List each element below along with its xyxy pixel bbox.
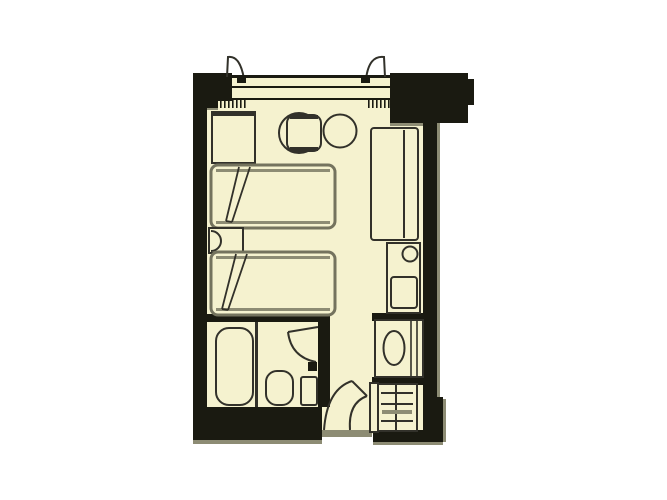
twin-bed-2 <box>211 252 335 315</box>
bed-2-fold-top <box>216 256 330 259</box>
cafe-table <box>287 115 321 151</box>
entry-door-frame <box>370 383 378 432</box>
floor-plan-canvas <box>0 0 667 500</box>
wall-right-column <box>423 123 437 397</box>
counter-desk-top <box>371 128 418 240</box>
closet-hanger-rod <box>382 410 412 414</box>
curtain-box-left <box>218 100 247 108</box>
cabinet-body <box>212 112 255 163</box>
shadow-right-column <box>437 123 440 397</box>
curtain-right-tieback <box>361 75 370 83</box>
bathtub <box>216 328 253 405</box>
bedroom-furniture <box>209 112 357 315</box>
chair-round-small <box>324 115 357 148</box>
shadow-top-right <box>390 123 423 126</box>
cabinet <box>212 112 255 163</box>
shadow-bottom-right <box>373 442 443 445</box>
wall-top-left-block <box>193 73 232 101</box>
window-sill-line <box>224 98 392 100</box>
bed-1-mattress <box>211 165 335 228</box>
toilet <box>266 371 293 405</box>
window-inner-line <box>230 86 390 88</box>
minibar-unit <box>387 243 420 313</box>
bed-1-fold-top <box>216 169 330 172</box>
shadow-right-foot <box>443 399 446 442</box>
nightstand <box>209 228 243 253</box>
wall-top-right-tab <box>468 79 474 105</box>
kettle <box>403 247 418 262</box>
table-edge-top <box>290 115 318 119</box>
washbasin-bowl <box>384 331 405 365</box>
entry-floor <box>322 407 373 434</box>
shadow-bottom-wall <box>193 440 322 444</box>
closet <box>376 384 417 431</box>
table-edge-bottom <box>290 147 318 151</box>
counter-desk <box>371 128 418 240</box>
curtain-left-tieback <box>237 75 246 83</box>
minibar-fridge <box>391 277 417 308</box>
wall-left <box>193 100 207 440</box>
wall-bottom <box>193 407 322 440</box>
washbasin-unit <box>375 320 423 377</box>
wall-top-right-block <box>390 73 468 123</box>
entry-threshold <box>322 430 372 437</box>
hand-basin <box>301 377 317 405</box>
table-top <box>287 115 321 151</box>
twin-bed-1 <box>211 165 335 228</box>
bathroom-partition <box>255 322 258 407</box>
bed-2-fold-bottom <box>216 308 330 311</box>
wall-bathroom-right <box>318 314 330 407</box>
cabinet-top-edge <box>212 112 255 116</box>
bathroom-door-stop <box>308 362 317 371</box>
curtain-box-right <box>367 100 390 108</box>
